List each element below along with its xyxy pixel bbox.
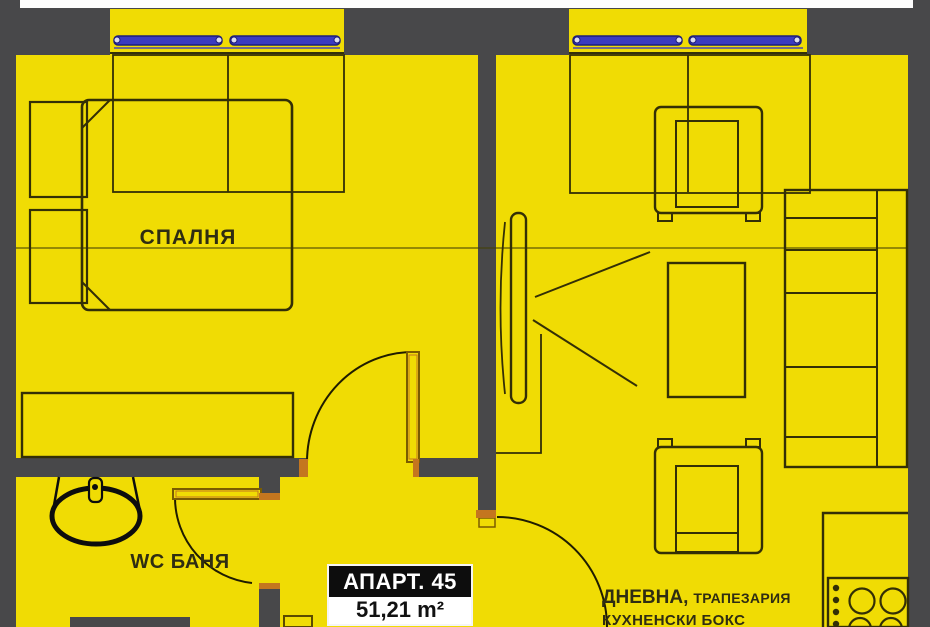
living-label-line1: ДНЕВНА,ТРАПЕЗАРИЯ xyxy=(602,587,902,609)
living-label-primary: ДНЕВНА, xyxy=(602,587,688,608)
living-label-line2: КУХНЕНСКИ БОКС xyxy=(602,612,902,627)
door-jamb-accent xyxy=(259,493,280,500)
living-label-secondary: ТРАПЕЗАРИЯ xyxy=(693,590,790,606)
floor-layer xyxy=(16,9,908,627)
hall-cabinet-icon xyxy=(284,616,312,627)
window-sash-icon xyxy=(689,36,801,45)
apartment-area: 51,21 m² xyxy=(329,597,471,624)
apartment-number: АПАРТ. 45 xyxy=(329,566,471,597)
wc-doorway xyxy=(259,500,280,585)
living-floor xyxy=(496,55,908,627)
bedroom-room-label: СПАЛНЯ xyxy=(113,226,263,250)
window-sash-icon xyxy=(114,36,222,45)
sash-end-cap xyxy=(574,37,580,43)
door-jamb-accent xyxy=(259,583,280,589)
window-sash-icon xyxy=(230,36,340,45)
bottom-wall-stub xyxy=(70,617,190,627)
sash-end-cap xyxy=(676,37,682,43)
living-room-label: ДНЕВНА,ТРАПЕЗАРИЯ КУХНЕНСКИ БОКС xyxy=(602,587,902,627)
window-sash-icon xyxy=(573,36,682,45)
sash-end-cap xyxy=(334,37,340,43)
sash-end-cap xyxy=(114,37,120,43)
door-jamb-accent xyxy=(299,459,308,477)
bedroom-doorway xyxy=(307,458,413,477)
wc-room-label: WC БАНЯ xyxy=(102,551,258,574)
floor-plan-canvas: СПАЛНЯ WC БАНЯ АПАРТ. 45 51,21 m² ДНЕВНА… xyxy=(0,0,930,627)
sash-end-cap xyxy=(216,37,222,43)
hall-living-opening xyxy=(478,517,496,627)
door-jamb-accent xyxy=(413,459,419,477)
sash-end-cap xyxy=(231,37,237,43)
entry-door-jamb-marker xyxy=(479,518,495,527)
door-jamb-accent xyxy=(476,510,496,518)
toilet-flush-icon xyxy=(89,478,102,502)
sash-end-cap xyxy=(690,37,696,43)
toilet-flush-button xyxy=(92,484,98,490)
top-white-strip xyxy=(20,0,913,8)
apartment-badge: АПАРТ. 45 51,21 m² xyxy=(327,564,473,626)
floor-plan-drawing xyxy=(0,0,930,627)
sash-end-cap xyxy=(794,37,800,43)
